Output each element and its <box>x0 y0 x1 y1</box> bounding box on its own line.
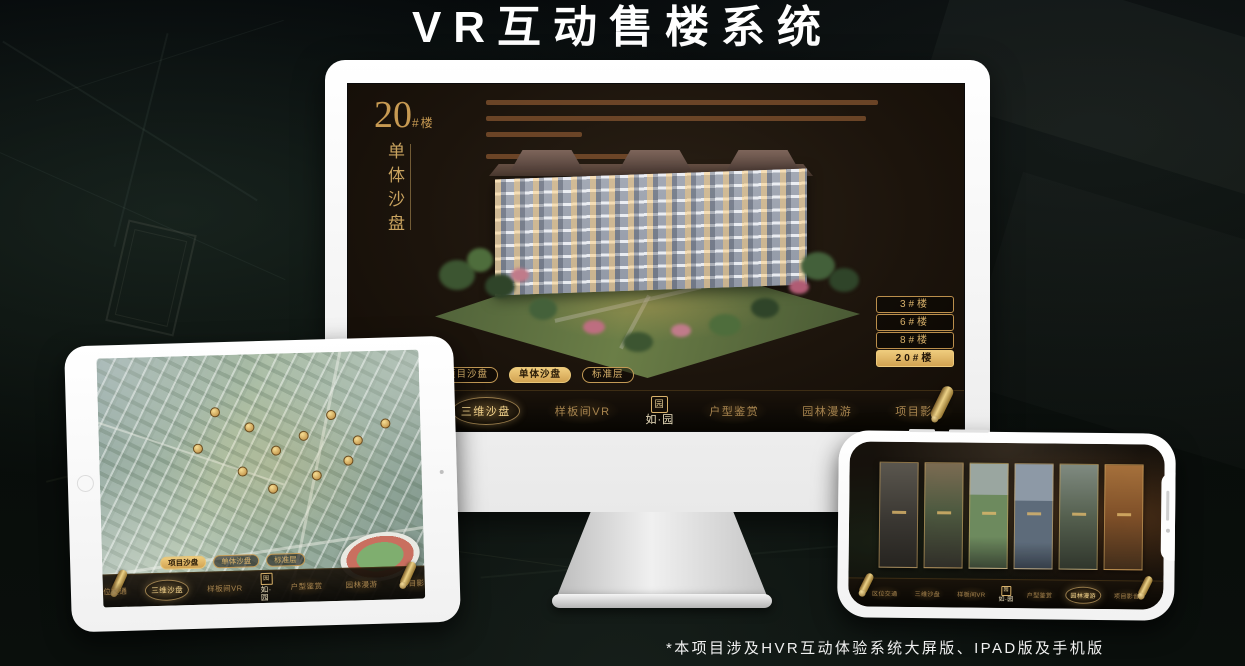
page-title: VR互动售楼系统 <box>0 0 1245 56</box>
nav-item-location[interactable]: 区位交通 <box>868 585 902 600</box>
poster-stage: VR互动售楼系统 20#楼 单体沙盘 <box>0 0 1245 666</box>
subtab-project[interactable]: 项目沙盘 <box>160 556 206 570</box>
floor-button-6[interactable]: 6#楼 <box>876 314 954 331</box>
monitor-stand <box>557 512 767 596</box>
nav-item-floorplans[interactable]: 户型鉴赏 <box>285 576 328 596</box>
gallery-card[interactable] <box>924 462 964 568</box>
floor-button-20[interactable]: 20#楼 <box>876 350 954 367</box>
flower-bush <box>671 324 691 337</box>
gallery-card[interactable] <box>1059 464 1099 570</box>
phone-speaker-icon <box>1166 491 1169 521</box>
tree <box>485 274 515 298</box>
project-logo: 园 如·园 <box>260 573 273 601</box>
tree <box>829 268 859 292</box>
tree <box>529 298 557 320</box>
project-logo-name: 如·园 <box>998 596 1013 602</box>
ipad-camera-icon <box>440 470 444 474</box>
tree <box>709 314 741 336</box>
ruyuan-seal-icon: 园 <box>651 396 668 413</box>
project-logo: 园 如·园 <box>646 396 675 426</box>
phone-volume-button[interactable] <box>909 429 935 432</box>
phone-camera-icon <box>1166 529 1170 533</box>
title-divider <box>410 144 411 230</box>
nav-item-sandtable[interactable]: 三维沙盘 <box>452 397 520 425</box>
project-logo-name: 如·园 <box>261 586 273 601</box>
bg-plaque-frame <box>105 219 197 336</box>
unit-number: 20#楼 <box>374 96 435 134</box>
flower-bush <box>511 268 529 282</box>
tree <box>623 332 653 352</box>
floor-button-8[interactable]: 8#楼 <box>876 332 954 349</box>
flower-bush <box>583 320 605 334</box>
scroll-menu-icon[interactable] <box>1137 575 1154 598</box>
project-logo: 园 如·园 <box>998 585 1013 602</box>
ruyuan-seal-icon: 园 <box>1001 585 1011 595</box>
nav-item-garden-roam[interactable]: 园林漫游 <box>794 398 860 424</box>
monitor-base <box>552 594 772 608</box>
ipad-home-button[interactable] <box>77 475 94 492</box>
phone-bottom-nav: 区位交通 三维沙盘 样板间VR 园 如·园 户型鉴赏 园林漫游 项目影音 <box>848 577 1163 609</box>
phone-power-button[interactable] <box>949 429 989 432</box>
roof-gable <box>727 150 799 170</box>
project-logo-name: 如·园 <box>646 415 675 426</box>
ipad-screen: 项目沙盘 单体沙盘 标准层 区位交通 三维沙盘 样板间VR 园 如·园 户型鉴赏… <box>96 350 425 608</box>
description-line <box>486 116 866 121</box>
nav-item-garden-roam[interactable]: 园林漫游 <box>340 574 383 594</box>
ruyuan-seal-icon: 园 <box>260 573 272 585</box>
roof-gable <box>511 150 583 170</box>
subtab-floorplan[interactable]: 标准层 <box>266 553 305 567</box>
building-facade <box>495 169 807 296</box>
panorama-gallery <box>879 462 1144 571</box>
phone-notch <box>1161 473 1176 561</box>
footnote: *本项目涉及HVR互动体验系统大屏版、IPAD版及手机版 <box>666 637 1105 658</box>
subtab-single[interactable]: 单体沙盘 <box>213 554 259 568</box>
gallery-card[interactable] <box>969 463 1009 569</box>
nav-item-floorplans[interactable]: 户型鉴赏 <box>701 398 767 424</box>
unit-subtitle: 单体沙盘 <box>382 142 407 238</box>
flower-bush <box>789 280 809 294</box>
roof-gable <box>619 150 691 170</box>
tree <box>467 248 493 272</box>
nav-item-floorplans[interactable]: 户型鉴赏 <box>1023 587 1057 602</box>
building-model-render <box>433 152 878 392</box>
nav-item-garden-roam[interactable]: 园林漫游 <box>1065 586 1101 603</box>
subtab-floorplan[interactable]: 标准层 <box>582 367 634 383</box>
phone-screen: 区位交通 三维沙盘 样板间VR 园 如·园 户型鉴赏 园林漫游 项目影音 <box>848 441 1165 609</box>
subtab-single[interactable]: 单体沙盘 <box>509 367 571 383</box>
nav-item-showroom-vr[interactable]: 样板间VR <box>202 578 248 598</box>
nav-item-sandtable[interactable]: 三维沙盘 <box>145 579 190 601</box>
floor-button-3[interactable]: 3#楼 <box>876 296 954 313</box>
tree <box>751 298 779 318</box>
ipad-frame: 项目沙盘 单体沙盘 标准层 区位交通 三维沙盘 样板间VR 园 如·园 户型鉴赏… <box>64 336 461 633</box>
nav-item-sandtable[interactable]: 三维沙盘 <box>911 585 945 600</box>
gallery-card[interactable] <box>1014 463 1054 569</box>
nav-item-location[interactable]: 区位交通 <box>96 581 132 601</box>
nav-item-showroom-vr[interactable]: 样板间VR <box>547 398 619 424</box>
sandtable-subtabs: 项目沙盘 单体沙盘 标准层 <box>436 367 634 383</box>
description-line <box>486 132 582 137</box>
gallery-card[interactable] <box>879 462 919 568</box>
nav-item-showroom-vr[interactable]: 样板间VR <box>953 586 989 601</box>
phone-frame: 区位交通 三维沙盘 样板间VR 园 如·园 户型鉴赏 园林漫游 项目影音 <box>837 430 1176 621</box>
description-line <box>486 100 878 105</box>
gallery-card[interactable] <box>1104 464 1144 570</box>
